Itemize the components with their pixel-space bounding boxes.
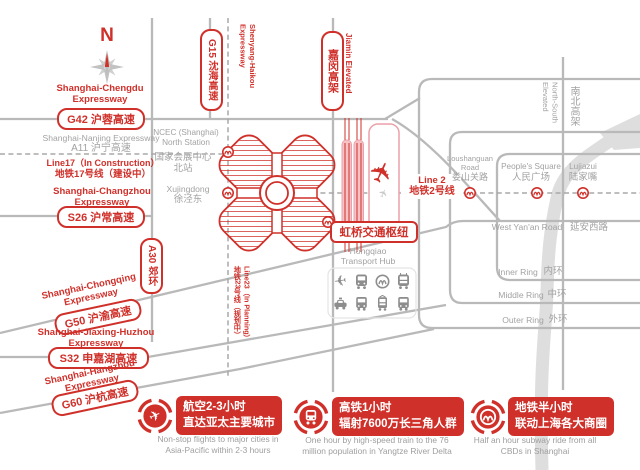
hub-name-box: 虹桥交通枢纽 [330, 221, 418, 243]
label-outer-ring-en: Outer Ring [500, 315, 546, 325]
transport-map: N Shanghai-Chengdu Expressway G42 沪蓉高速 S… [0, 0, 640, 470]
hsr-roundel-icon [290, 396, 332, 438]
callout-rail-banner: 高铁1小时 辐射7600万长三角人群 [332, 397, 464, 436]
station-icon-loushanguan [465, 188, 475, 198]
airplane-icon: ✈ [331, 272, 349, 290]
label-xujingdong: Xujingdong 徐泾东 [152, 184, 224, 205]
label-middle-ring-cn: 中环 [546, 289, 568, 300]
label-jiamin-elevated: Jiamin Elevated [344, 33, 353, 113]
label-outer-ring-cn: 外环 [547, 314, 569, 325]
badge-g42: G42 沪蓉高速 [57, 108, 145, 130]
bus-icon [352, 294, 370, 312]
label-inner-ring-cn: 内环 [542, 266, 564, 277]
label-hongqiao-hub-en: Hongqiao Transport Hub [330, 246, 406, 266]
station-icon-xujingdong [223, 188, 233, 198]
tram-icon [373, 294, 391, 312]
hsr-train-icon [394, 272, 412, 290]
label-nanbei-gaojia: 南北高架 [566, 86, 581, 166]
label-shanghai-chengdu: Shanghai-Chengdu Expressway [44, 83, 156, 105]
callout-metro-banner: 地铁半小时 联动上海各大商圈 [508, 397, 614, 436]
badge-s26: S26 沪常高速 [57, 206, 145, 228]
label-west-yanan-road-cn: 延安西路 [568, 222, 610, 233]
label-north-south-elevated: North-South Elevated [540, 82, 560, 178]
bus-icon [394, 294, 412, 312]
label-line23: Line23（In Planning） 地铁23号线（规划中） [233, 266, 252, 370]
badge-jiamin: 嘉闵高架 [321, 31, 344, 111]
transport-mode-icons: ✈ [331, 272, 415, 312]
label-ncec-en: NCEC (Shanghai) North Station [150, 128, 222, 147]
label-ncec-cn: 国家会展中心 北站 [146, 152, 220, 174]
label-middle-ring-en: Middle Ring [496, 290, 546, 300]
airplane-roundel-icon: ✈ [134, 395, 176, 437]
taxi-icon [331, 294, 349, 312]
train-icon [352, 272, 370, 290]
callout-metro-caption: Half an hour subway ride from all CBDs i… [458, 435, 612, 457]
callout-rail-caption: One hour by high-speed train to the 76 m… [296, 435, 458, 457]
station-icon-ncec-north [223, 147, 233, 157]
metro-roundel-icon [467, 396, 509, 438]
badge-g15: G15 沈海高速 [200, 29, 223, 111]
label-shenyang-haikou: Shenyang-Haikou Expressway [238, 24, 257, 120]
station-icon-lujiazui [578, 188, 588, 198]
metro-logo-icon [373, 272, 391, 290]
label-west-yanan-road-en: West Yan'an Road [490, 222, 564, 232]
callout-air-banner: 航空2-3小时 直达亚太主要城市 [176, 396, 282, 435]
label-loushanguan: Loushanguan Road 娄山关路 [444, 155, 496, 183]
callout-air-caption: Non-stop flights to major cities in Asia… [140, 434, 296, 456]
label-inner-ring-en: Inner Ring [496, 267, 540, 277]
station-icon-peoples-square [532, 188, 542, 198]
